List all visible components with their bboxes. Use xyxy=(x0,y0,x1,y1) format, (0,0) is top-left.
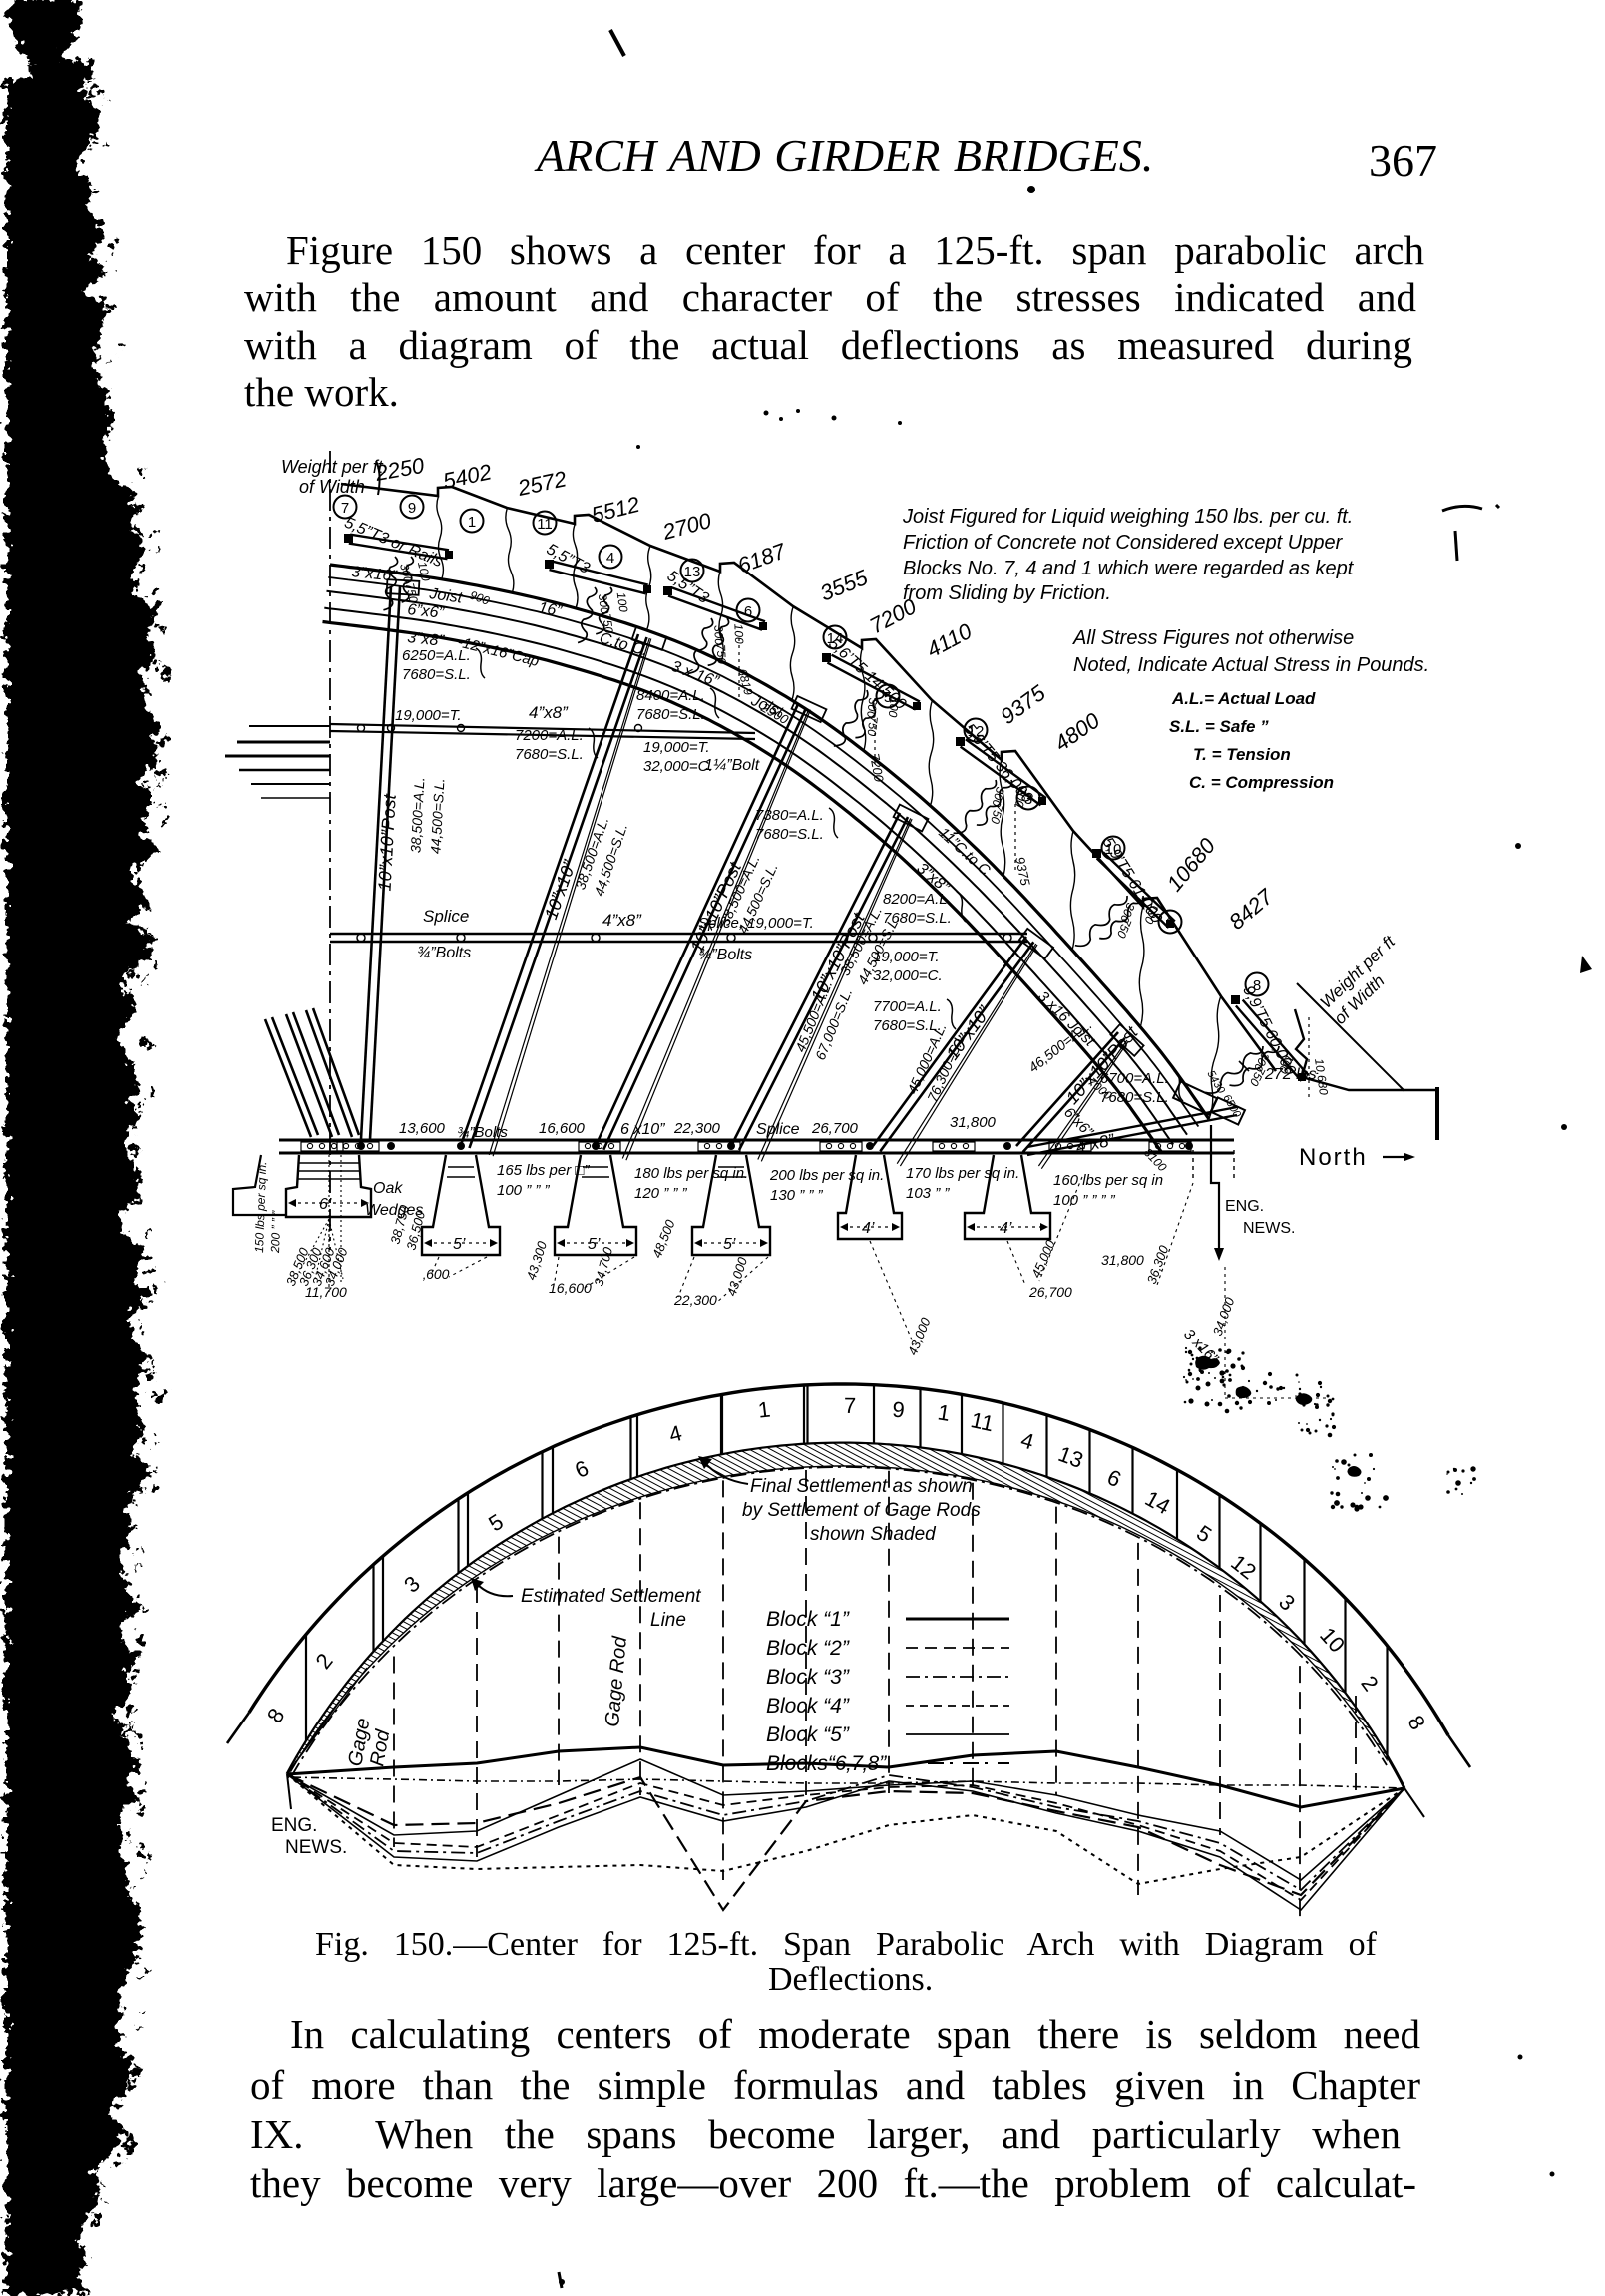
svg-text:1: 1 xyxy=(468,514,476,531)
svg-text:5402: 5402 xyxy=(441,459,494,494)
svg-text:3: 3 xyxy=(1274,1589,1300,1616)
svg-text:4”x8”: 4”x8” xyxy=(602,911,642,930)
svg-text:3555: 3555 xyxy=(817,565,872,606)
svg-text:8200=A.L.: 8200=A.L. xyxy=(883,891,952,908)
svg-text:All Stress Figures not otherwi: All Stress Figures not otherwise xyxy=(1072,627,1354,649)
svg-text:10,680: 10,680 xyxy=(1312,1057,1331,1096)
svg-text:26,700: 26,700 xyxy=(811,1120,859,1137)
svg-text:44,500=S.L.: 44,500=S.L. xyxy=(427,778,447,855)
svg-text:300: 300 xyxy=(596,593,612,615)
svg-text:4: 4 xyxy=(666,1420,684,1447)
svg-text:2: 2 xyxy=(1356,1671,1383,1696)
svg-text:5: 5 xyxy=(1192,1520,1216,1548)
svg-text:Block “4”: Block “4” xyxy=(766,1695,850,1718)
svg-text:11: 11 xyxy=(969,1407,997,1436)
svg-text:160 lbs per sq in: 160 lbs per sq in xyxy=(1053,1172,1163,1189)
svg-text:31,800: 31,800 xyxy=(1101,1252,1144,1268)
svg-text:19,000=T.: 19,000=T. xyxy=(395,707,462,724)
svg-text:Friction of Concrete not Consi: Friction of Concrete not Considered exce… xyxy=(903,532,1344,554)
svg-text:36,300: 36,300 xyxy=(1144,1243,1172,1286)
svg-text:7: 7 xyxy=(844,1393,857,1418)
svg-text:6819: 6819 xyxy=(735,667,756,697)
svg-text:9375: 9375 xyxy=(996,680,1050,729)
svg-text:130 ” ” ”: 130 ” ” ” xyxy=(770,1187,824,1204)
svg-text:T. = Tension: T. = Tension xyxy=(1193,745,1291,764)
svg-text:5’: 5’ xyxy=(588,1236,601,1253)
svg-text:6: 6 xyxy=(1103,1464,1125,1492)
svg-text:34,000: 34,000 xyxy=(1210,1295,1238,1338)
svg-text:7680=S.L.: 7680=S.L. xyxy=(402,666,471,683)
svg-text:5: 5 xyxy=(484,1509,508,1537)
svg-text:165 lbs per □”: 165 lbs per □” xyxy=(497,1162,590,1179)
svg-text:43,000: 43,000 xyxy=(905,1315,934,1357)
svg-text:11: 11 xyxy=(537,516,553,533)
svg-text:Block “1”: Block “1” xyxy=(766,1608,850,1631)
svg-text:13,600: 13,600 xyxy=(399,1120,446,1137)
svg-text:100: 100 xyxy=(731,623,746,644)
svg-text:NEWS.: NEWS. xyxy=(1243,1220,1295,1237)
svg-text:2: 2 xyxy=(311,1649,338,1674)
svg-text:7680=S.L.: 7680=S.L. xyxy=(755,826,824,843)
svg-text:3”x16”: 3”x16” xyxy=(351,564,399,585)
svg-text:7700=A.L.: 7700=A.L. xyxy=(873,998,942,1015)
svg-text:Noted, Indicate Actual Stress: Noted, Indicate Actual Stress in Pounds. xyxy=(1073,654,1429,676)
svg-text:8: 8 xyxy=(262,1704,290,1727)
svg-text:from Sliding by Friction.: from Sliding by Friction. xyxy=(903,582,1111,604)
svg-text:32,000=C.: 32,000=C. xyxy=(873,967,943,984)
svg-text:43,300: 43,300 xyxy=(524,1239,551,1282)
svg-text:Weight per ft.: Weight per ft. xyxy=(281,457,388,477)
svg-text:900: 900 xyxy=(468,588,492,608)
svg-text:4: 4 xyxy=(1018,1427,1037,1454)
svg-text:Splice: Splice xyxy=(756,1121,800,1138)
svg-text:6’: 6’ xyxy=(319,1196,332,1213)
svg-text:3: 3 xyxy=(399,1571,425,1598)
svg-text:1¼”Bolt: 1¼”Bolt xyxy=(704,757,760,774)
svg-text:750: 750 xyxy=(714,644,729,665)
svg-text:Blocks“6‚7‚8”: Blocks“6‚7‚8” xyxy=(766,1752,887,1775)
svg-text:170 lbs per sq in.: 170 lbs per sq in. xyxy=(906,1165,1019,1182)
svg-text:5’: 5’ xyxy=(723,1236,736,1253)
svg-text:C. = Compression: C. = Compression xyxy=(1189,773,1334,792)
svg-text:5512: 5512 xyxy=(589,492,642,528)
svg-text:6 x10”: 6 x10” xyxy=(620,1121,665,1138)
svg-text:Oak: Oak xyxy=(373,1180,403,1197)
svg-text:6: 6 xyxy=(571,1455,592,1483)
svg-text:Joist Figured for Liquid weigh: Joist Figured for Liquid weighing 150 lb… xyxy=(902,506,1353,528)
svg-text:Final Settlement as shown: Final Settlement as shown xyxy=(750,1476,973,1497)
svg-text:100: 100 xyxy=(614,591,631,613)
svg-text:Block “3”: Block “3” xyxy=(766,1666,850,1689)
svg-text:8400=A.L.: 8400=A.L. xyxy=(636,687,705,704)
svg-text:2572: 2572 xyxy=(515,466,569,501)
svg-text:4: 4 xyxy=(606,550,614,567)
svg-text:103 ” ”: 103 ” ” xyxy=(906,1185,950,1202)
svg-text:4”x8”: 4”x8” xyxy=(529,703,569,722)
svg-text:100 ” ” ” ”: 100 ” ” ” ” xyxy=(1053,1192,1116,1209)
svg-text:Blocks No. 7, 4 and 1 which we: Blocks No. 7, 4 and 1 which were regarde… xyxy=(903,558,1355,579)
svg-text:of Width: of Width xyxy=(299,477,365,497)
svg-text:22,300: 22,300 xyxy=(673,1120,721,1137)
svg-text:150 lbs per sq in.: 150 lbs per sq in. xyxy=(252,1161,269,1253)
svg-text:¾”Bolts: ¾”Bolts xyxy=(457,1124,508,1141)
svg-text:22,300: 22,300 xyxy=(673,1292,717,1308)
svg-text:7200: 7200 xyxy=(867,752,887,784)
svg-text:7680=S.L.: 7680=S.L. xyxy=(1100,1089,1169,1106)
svg-text:6250=A.L.: 6250=A.L. xyxy=(402,647,471,664)
svg-text:4800: 4800 xyxy=(1050,707,1105,756)
svg-text:16,600: 16,600 xyxy=(539,1120,586,1137)
svg-text:32,000=C.: 32,000=C. xyxy=(643,758,713,775)
svg-text:26,700: 26,700 xyxy=(1028,1284,1072,1300)
svg-text:45,000: 45,000 xyxy=(1028,1237,1058,1280)
svg-text:38,500=A.L.: 38,500=A.L. xyxy=(407,777,427,854)
svg-text:8100: 8100 xyxy=(1141,1145,1170,1174)
svg-text:200 ” ” ”: 200 ” ” ” xyxy=(268,1210,284,1254)
svg-text:750: 750 xyxy=(865,715,881,737)
svg-text:19,000=T.: 19,000=T. xyxy=(643,739,710,756)
svg-text:6: 6 xyxy=(744,603,752,620)
svg-text:14: 14 xyxy=(1141,1486,1175,1520)
svg-text:Gage Rod: Gage Rod xyxy=(602,1635,631,1728)
svg-text:48,500: 48,500 xyxy=(649,1217,678,1260)
svg-text:NEWS.: NEWS. xyxy=(285,1837,347,1858)
svg-text:‚600: ‚600 xyxy=(422,1266,450,1282)
svg-text:11,700: 11,700 xyxy=(305,1284,347,1300)
svg-text:6187: 6187 xyxy=(734,538,789,577)
svg-text:Block “2”: Block “2” xyxy=(766,1637,850,1660)
svg-text:4’: 4’ xyxy=(1000,1220,1012,1237)
svg-text:4’: 4’ xyxy=(862,1220,875,1237)
svg-text:31,800: 31,800 xyxy=(950,1114,997,1131)
svg-text:100: 100 xyxy=(886,697,902,719)
svg-text:200 lbs per sq in.: 200 lbs per sq in. xyxy=(769,1167,884,1184)
svg-text:750: 750 xyxy=(1114,916,1135,940)
svg-text:by Settlement of Gage Rods: by Settlement of Gage Rods xyxy=(742,1500,981,1521)
svg-text:7680=S.L.: 7680=S.L. xyxy=(515,746,584,763)
svg-text:10680: 10680 xyxy=(1162,833,1221,897)
svg-text:Estimated Settlement: Estimated Settlement xyxy=(521,1586,701,1607)
svg-text:8: 8 xyxy=(1404,1711,1431,1733)
svg-text:300: 300 xyxy=(711,625,726,646)
svg-text:ENG.: ENG. xyxy=(271,1815,317,1836)
svg-text:¾”Bolts: ¾”Bolts xyxy=(417,945,471,961)
svg-text:13: 13 xyxy=(1055,1441,1087,1473)
svg-text:ENG.: ENG. xyxy=(1225,1198,1264,1215)
svg-text:11”C.to C.: 11”C.to C. xyxy=(935,824,996,882)
svg-text:5,5”T3: 5,5”T3 xyxy=(544,541,593,577)
svg-text:Splice: Splice xyxy=(423,907,469,926)
svg-text:6700=A.L.: 6700=A.L. xyxy=(1100,1070,1169,1087)
svg-text:1: 1 xyxy=(936,1399,952,1426)
svg-text:9: 9 xyxy=(408,500,416,517)
svg-text:4110: 4110 xyxy=(923,618,977,663)
svg-text:16”: 16” xyxy=(537,599,563,620)
svg-text:Line: Line xyxy=(650,1610,686,1631)
svg-text:1: 1 xyxy=(757,1396,772,1422)
svg-text:North: North xyxy=(1299,1144,1368,1171)
svg-text:5’: 5’ xyxy=(453,1236,466,1253)
svg-text:2700: 2700 xyxy=(659,508,714,545)
svg-text:Block “5”: Block “5” xyxy=(766,1723,850,1746)
svg-text:120 ” ” ”: 120 ” ” ” xyxy=(634,1185,688,1202)
svg-text:10”x10”Post: 10”x10”Post xyxy=(375,793,400,892)
svg-text:180 lbs per sq in.: 180 lbs per sq in. xyxy=(634,1165,748,1182)
svg-text:shown Shaded: shown Shaded xyxy=(810,1524,937,1545)
svg-text:8427: 8427 xyxy=(1224,884,1278,935)
svg-text:7680=S.L.: 7680=S.L. xyxy=(636,706,705,723)
svg-text:100 ” ” ”: 100 ” ” ” xyxy=(497,1182,551,1199)
svg-text:9: 9 xyxy=(891,1397,905,1423)
svg-text:S.L. = Safe ”: S.L. = Safe ” xyxy=(1169,717,1269,736)
svg-text:A.L.= Actual Load: A.L.= Actual Load xyxy=(1171,689,1316,708)
